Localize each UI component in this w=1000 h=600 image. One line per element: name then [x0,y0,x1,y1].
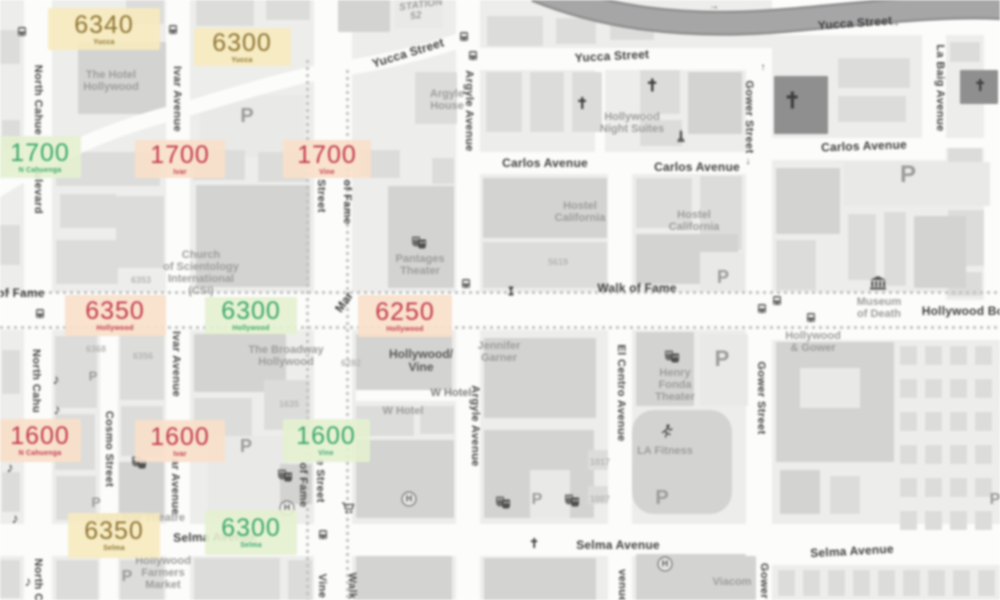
street-label-carlos-avenue: Carlos Avenue [654,160,740,174]
street-label-vertical-ivar-avenue: Ivar Avenue [170,331,182,397]
poi-label-viacom: Viacom [713,576,752,588]
poi-label-line: International [163,273,239,285]
parking-icon: P [240,437,252,455]
street-label-carlos-avenue: Carlos Avenue [502,156,588,170]
bus-icon [772,296,782,307]
poi-label-la-fitness: LA Fitness [637,445,693,457]
museum-icon [869,276,887,290]
street-label-walk-of-fame: Walk of Fame [0,286,45,300]
note-icon: ♪ [25,574,32,588]
building-number: 1635 [279,399,299,409]
street-label-52: 52 [410,10,423,22]
block-label-1600-vine[interactable]: 1600Vine [283,419,370,462]
parking-icon: P [89,370,98,383]
cross-icon [530,538,537,548]
runner-icon [661,424,673,438]
map-canvas[interactable]: PPPPPPPPPPPHHH♪♪♪♪♪→→↑↓63536368635662821… [0,0,1000,600]
poi-label-line: Hollywood [248,356,323,368]
poi-label-museum: Museumof Death [857,296,902,320]
cart-icon [341,502,355,514]
poi-label-line: Jennifer [478,340,521,352]
block-street: Vine [318,450,333,457]
block-label-6300-yucca[interactable]: 6300Yucca [194,28,291,66]
building-number: 5619 [548,257,568,267]
poi-label-line: Hostel [669,209,720,221]
block-number: 6250 [375,299,435,325]
bus-icon [461,279,471,290]
block-street: N Cahuenga [19,450,62,457]
poi-label-line: Viacom [713,576,752,588]
poi-label-line: (CSI) [163,285,239,297]
note-icon: ♪ [12,511,19,525]
bus-icon [168,25,178,36]
building-number: 6353 [131,275,151,285]
poi-label-line: Hostel [555,200,606,212]
street-label-vertical-vine: Vine [316,574,328,599]
poi-label-line: W Hotel [383,405,424,417]
cross-icon [786,92,798,109]
masks-icon [664,350,680,363]
masks-icon [411,236,427,249]
parking-icon: P [717,268,729,286]
walk-of-fame-strip [0,291,1000,294]
poi-label-line: & Gower [785,342,841,354]
bus-icon [468,51,478,62]
street-label-vertical-gower-street: Gower Street [755,361,767,434]
poi-label-line: Theater [655,391,695,403]
parking-icon: P [532,492,543,508]
poi-label-argyle: ArgyleHouse [430,88,464,112]
block-number: 6350 [84,518,144,544]
parking-icon: P [240,106,253,126]
block-number: 6300 [221,298,281,324]
arrow-up-icon: ↑ [761,63,766,73]
bus-icon [757,304,767,315]
cross-icon [976,79,985,91]
block-label-6300-hollywood[interactable]: 6300Hollywood [205,297,297,334]
block-number: 1600 [10,423,70,449]
monument-icon [677,130,685,143]
block-street: Selma [103,545,125,552]
block-street: Ivar [173,169,186,176]
block-number: 6300 [212,30,272,56]
block-label-6350-hollywood[interactable]: 6350Hollywood [65,295,166,336]
poi-label-line: W Hotel [431,387,472,399]
block-street: N Cahuenga [19,167,62,174]
block-street: Yucca [93,39,114,46]
parking-icon: P [655,488,668,508]
street-label-vertical-cosmo-street: Cosmo Street [103,411,115,487]
block-number: 1600 [150,424,210,450]
block-label-6340-yucca[interactable]: 6340Yucca [48,8,160,50]
block-label-1700-n-cahuenga[interactable]: 1700N Cahuenga [0,136,81,178]
poi-label-the-broadway: The BroadwayHollywood [248,344,323,368]
block-number: 6350 [85,298,145,324]
block-label-1600-n-cahuenga[interactable]: 1600N Cahuenga [0,419,81,462]
block-label-6250-hollywood[interactable]: 6250Hollywood [358,295,452,337]
street-label-vertical-el-centro-avenue: El Centro Avenue [615,344,627,441]
block-street: Hollywood [232,325,269,332]
block-label-6300-selma[interactable]: 6300Selma [205,510,297,555]
block-number: 6300 [221,515,281,541]
masks-icon [277,469,293,482]
block-number: 1700 [10,140,70,166]
bus-icon [459,32,469,43]
fountain-icon [507,286,516,297]
poi-label-hostel: HostelCalifornia [555,200,606,224]
building-number: 6368 [86,344,106,354]
poi-label-the-hotel: The HotelHollywood [83,69,139,93]
poi-label-line: Hollywood [600,111,664,123]
street-label-vertical-north-cahu: North Cahu [30,349,42,413]
block-street: Vine [319,169,334,176]
arrow-right-icon: → [709,2,719,12]
note-icon: ♪ [7,460,14,474]
poi-label-line: Church [163,249,239,261]
street-label-carlos-avenue: Carlos Avenue [821,138,907,155]
poi-label-line: Night Suites [600,123,664,135]
poi-label-line: Farmers [135,567,191,579]
masks-icon [564,494,580,507]
bus-icon [17,27,27,38]
parking-icon: P [715,348,730,370]
poi-label-hollywood: HollywoodFarmersMarket [135,555,191,591]
street-label-vertical-gower: Gower [758,563,770,599]
poi-label-line: Henry [655,367,695,379]
street-label-vertical-street: Street [315,179,327,213]
poi-label-line: The Hotel [83,69,139,81]
poi-label-line: Vine [389,361,453,374]
parking-icon: P [91,495,100,509]
building-number: 1017 [590,457,610,467]
poi-label-line: Market [135,579,191,591]
block-number: 1600 [296,423,356,449]
poi-label-line: Argyle [430,88,464,100]
block-number: 1700 [297,142,357,168]
parking-icon: P [900,163,916,187]
block-street: Ivar [173,451,186,458]
block-street: Hollywood [386,326,423,333]
poi-label-line: The Broadway [248,344,323,356]
poi-label-line: Theater [396,265,445,277]
poi-label-line: of Scientology [163,261,239,273]
poi-label-hollywood: HollywoodNight Suites [600,111,664,135]
street-label-vertical-north-cahue: North Cahue [32,65,44,135]
cross-icon [578,97,587,109]
poi-label-line: California [555,212,606,224]
poi-label-henry: HenryFondaTheater [655,367,695,403]
street-label-vertical-north-c: North C [32,558,44,600]
poi-label-line: Pantages [396,253,445,265]
block-label-1600-ivar[interactable]: 1600Ivar [135,420,225,462]
street-label-hollywood-boulevard: Hollywood Boulevard [922,304,1000,318]
poi-label-hollywood: Hollywood& Gower [785,330,841,354]
helipad-icon: H [402,492,417,507]
block-number: 1700 [150,142,210,168]
poi-label-pantages: PantagesTheater [396,253,445,277]
poi-label-line: Hollywood [83,81,139,93]
poi-label-church: Churchof ScientologyInternational(CSI) [163,249,239,297]
building-number: 1007 [590,494,610,504]
cross-icon [647,79,656,92]
poi-label-jennifer: JenniferGarner [478,340,521,364]
block-street: Selma [240,542,262,549]
poi-label-line: California [669,221,720,233]
street-label-vertical-walk: Walk [346,573,358,600]
poi-label-line: Hollywood [785,330,841,342]
street-label-vertical-ar-avenue: ar Avenue [169,459,181,515]
parking-icon: P [990,492,1000,508]
bus-icon [318,530,328,541]
poi-label-w-hotel: W Hotel [431,387,472,399]
building-number: 6282 [341,358,361,368]
street-label-vertical-of-fame: of Fame [297,463,309,508]
helipad-icon: H [658,557,673,572]
street-label-vertical-ulevard: ulevard [32,172,44,214]
street-label-vertical-venue: venue [616,569,628,600]
block-street: Yucca [231,57,252,64]
block-street: Hollywood [96,325,133,332]
street-label-vertical-e-street: e Street [314,459,326,503]
poi-label-w-hotel: W Hotel [383,405,424,417]
parking-icon: P [122,569,133,585]
note-icon: ♪ [54,402,61,416]
bus-icon [35,309,45,320]
street-label-selma-avenue: Selma Avenue [576,538,660,552]
poi-label-line: Fonda [655,379,695,391]
block-label-1700-vine[interactable]: 1700Vine [283,140,371,178]
masks-icon [495,496,511,509]
building-number: 6356 [133,351,153,361]
street-label-vertical-argyle-avenue: Argyle Avenue [463,70,475,151]
block-label-1700-ivar[interactable]: 1700Ivar [135,140,225,178]
street-label-walk-of-fame: Walk of Fame [597,281,676,295]
note-icon: ♪ [53,372,60,386]
poi-label-hostel: HostelCalifornia [669,209,720,233]
bus-icon [806,313,816,324]
street-label-vertical-la-baig-avenue: La Baig Avenue [934,44,946,131]
poi-label-line: Garner [478,352,521,364]
arrow-down-icon: ↓ [746,157,751,167]
block-label-6350-selma[interactable]: 6350Selma [68,513,160,558]
poi-label-hollywood-: Hollywood/Vine [389,348,453,374]
poi-label-line: House [430,100,464,112]
street-label-vertical-ivar-avenue: Ivar Avenue [171,66,183,132]
poi-label-line: Museum [857,296,902,308]
street-label-vertical-argyle-avenue: Argyle Avenue [469,385,481,466]
poi-label-line: LA Fitness [637,445,693,457]
street-label-vertical-of-fame: of Fame [341,180,353,225]
poi-label-line: of Death [857,308,902,320]
block-number: 6340 [74,12,134,38]
street-label-vertical-gower-street: Gower Street [743,80,755,153]
